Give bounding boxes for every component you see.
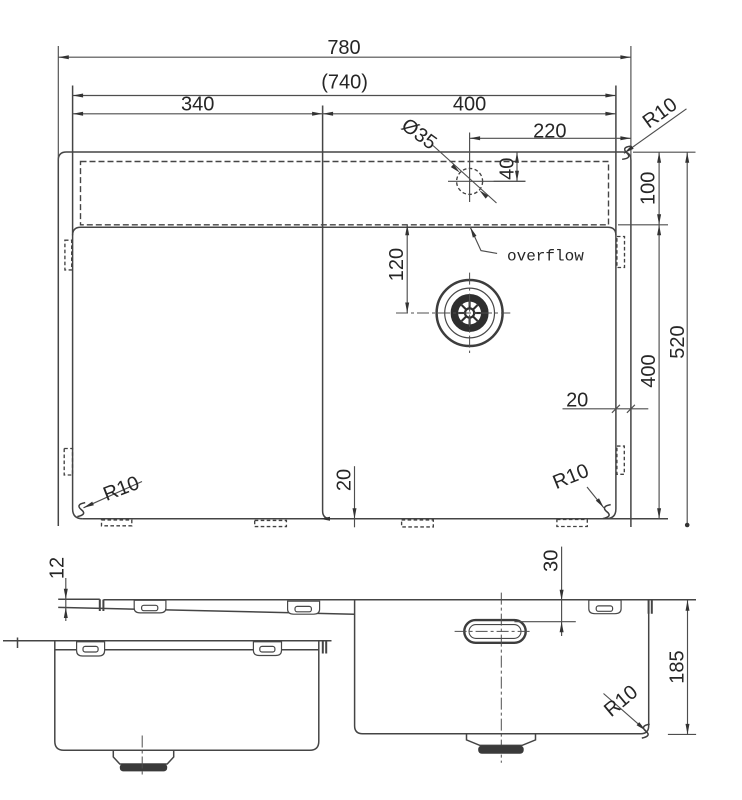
svg-text:R10: R10: [600, 681, 642, 721]
svg-text:overflow: overflow: [507, 248, 584, 266]
svg-text:220: 220: [533, 121, 566, 143]
svg-text:520: 520: [667, 325, 689, 358]
svg-text:185: 185: [667, 650, 689, 683]
svg-text:340: 340: [181, 94, 214, 116]
svg-text:100: 100: [638, 172, 660, 205]
svg-text:30: 30: [541, 550, 563, 572]
svg-text:R10: R10: [550, 460, 592, 494]
svg-text:20: 20: [566, 390, 588, 412]
svg-text:780: 780: [327, 37, 360, 59]
svg-text:(740): (740): [321, 72, 368, 94]
svg-text:120: 120: [386, 248, 408, 281]
svg-text:400: 400: [453, 94, 486, 116]
svg-text:40: 40: [497, 158, 519, 180]
svg-text:400: 400: [638, 354, 660, 387]
svg-text:20: 20: [334, 469, 356, 491]
svg-text:Ø35: Ø35: [397, 114, 441, 154]
svg-text:R10: R10: [100, 472, 142, 506]
svg-text:12: 12: [47, 557, 69, 579]
